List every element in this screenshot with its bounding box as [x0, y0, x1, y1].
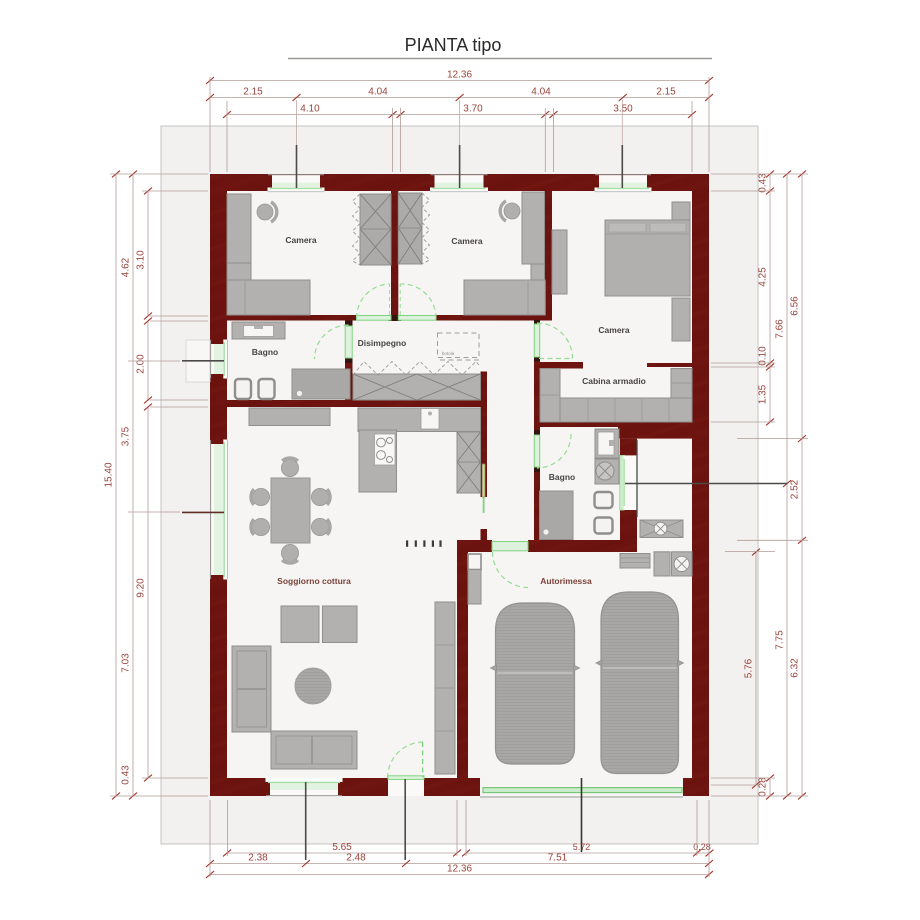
svg-text:0.28: 0.28: [693, 842, 711, 852]
svg-text:4.25: 4.25: [758, 267, 769, 287]
svg-text:4.62: 4.62: [121, 257, 132, 277]
svg-text:Camera: Camera: [451, 236, 482, 246]
svg-text:2.48: 2.48: [346, 852, 366, 863]
svg-text:1.35: 1.35: [758, 384, 769, 404]
svg-text:0.43: 0.43: [121, 765, 132, 785]
svg-text:4.04: 4.04: [531, 86, 551, 97]
svg-text:2.15: 2.15: [656, 86, 676, 97]
svg-text:15.40: 15.40: [104, 462, 115, 487]
svg-text:3.70: 3.70: [463, 103, 483, 114]
svg-text:12.36: 12.36: [447, 863, 472, 874]
svg-text:Soggiorno cottura: Soggiorno cottura: [277, 576, 351, 586]
svg-text:2.15: 2.15: [243, 86, 263, 97]
svg-text:7.03: 7.03: [121, 653, 132, 673]
svg-text:PIANTA tipo: PIANTA tipo: [405, 35, 502, 55]
svg-text:0.43: 0.43: [758, 173, 769, 193]
svg-text:9.20: 9.20: [136, 578, 147, 598]
svg-text:6.56: 6.56: [790, 296, 801, 316]
svg-text:Camera: Camera: [285, 235, 316, 245]
svg-text:7.75: 7.75: [775, 630, 786, 650]
svg-text:12.36: 12.36: [447, 69, 472, 80]
svg-text:Disimpegno: Disimpegno: [358, 338, 407, 348]
svg-text:botola: botola: [442, 351, 455, 356]
svg-text:2.38: 2.38: [248, 852, 268, 863]
svg-text:4.04: 4.04: [368, 86, 388, 97]
svg-text:6.32: 6.32: [790, 658, 801, 678]
svg-text:Bagno: Bagno: [549, 472, 575, 482]
svg-text:Camera: Camera: [598, 325, 629, 335]
svg-text:5.76: 5.76: [744, 658, 755, 678]
svg-text:3.75: 3.75: [121, 426, 132, 446]
svg-text:Cabina armadio: Cabina armadio: [582, 376, 646, 386]
svg-text:3.10: 3.10: [136, 250, 147, 270]
svg-text:4.10: 4.10: [300, 103, 320, 114]
svg-text:3.50: 3.50: [613, 103, 633, 114]
svg-text:Autorimessa: Autorimessa: [540, 576, 592, 586]
svg-text:2.00: 2.00: [136, 354, 147, 374]
svg-text:7.51: 7.51: [548, 852, 568, 863]
svg-text:2.52: 2.52: [790, 479, 801, 499]
svg-text:Bagno: Bagno: [252, 347, 278, 357]
svg-text:0.28: 0.28: [758, 777, 769, 797]
svg-text:7.66: 7.66: [775, 319, 786, 339]
svg-text:5.65: 5.65: [332, 842, 352, 853]
